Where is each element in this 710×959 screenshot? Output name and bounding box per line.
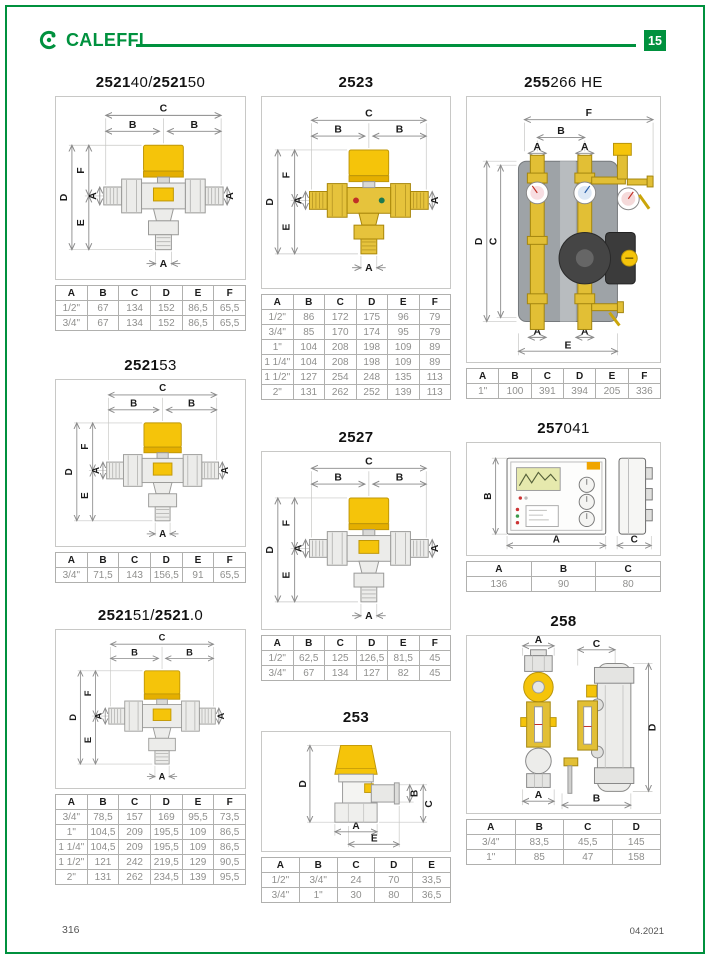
table-cell: 172 — [325, 310, 357, 325]
table-2527: ABCDEF1/2"62,5125126,581,5453/4"67134127… — [261, 635, 451, 681]
table-header-cell: F — [628, 369, 660, 384]
table-header-cell: C — [119, 795, 151, 810]
table-cell: 198 — [356, 355, 388, 370]
table-row: 1"100391394205336 — [467, 384, 661, 399]
table-cell: 152 — [150, 301, 182, 316]
table-cell: 174 — [356, 325, 388, 340]
table-header-cell: F — [214, 553, 246, 568]
dim-label-b: B — [557, 126, 565, 137]
table-header-cell: F — [214, 795, 246, 810]
table-cell: 89 — [419, 355, 451, 370]
table-header-cell: A — [56, 286, 88, 301]
table-cell: 1/2" — [262, 651, 294, 666]
diagram-258: A A C D B — [466, 635, 661, 814]
title-segment: 2521 — [124, 357, 159, 374]
dim-label-c: C — [593, 639, 601, 650]
page-number: 316 — [62, 924, 80, 936]
table-cell: 95 — [388, 325, 420, 340]
dim-label-b: B — [483, 493, 494, 500]
table-cell: 156,5 — [150, 568, 182, 583]
table-cell: 91 — [182, 568, 214, 583]
table-row: 1369080 — [467, 577, 661, 592]
table-header-row: ABCDEF — [262, 295, 451, 310]
table-cell: 391 — [531, 384, 563, 399]
title-segment: 2523 — [339, 74, 374, 91]
table-row: 1/2"3/4"247033,5 — [262, 873, 451, 888]
dim-label-a: A — [91, 467, 102, 474]
section-title-253: 253 — [261, 709, 451, 726]
table-row: 1 1/4"10420819810989 — [262, 355, 451, 370]
table-row: 2"131262252139113 — [262, 385, 451, 400]
table-cell: 36,5 — [413, 888, 451, 903]
dim-label-b: B — [130, 399, 137, 410]
table-cell: 262 — [325, 385, 357, 400]
table-cell: 129 — [182, 855, 214, 870]
table-cell: 104 — [293, 340, 325, 355]
table-row: 1"10420819810989 — [262, 340, 451, 355]
catalog-page: CALEFFI 15 252140/252150 — [0, 0, 710, 959]
table-cell: 82 — [388, 666, 420, 681]
title-segment: 041 — [564, 420, 590, 437]
table-252140: ABCDEF1/2"6713415286,565,53/4"6713415286… — [55, 285, 246, 331]
dim-label-a: A — [225, 192, 236, 200]
table-cell: 125 — [325, 651, 357, 666]
dim-label-d: D — [64, 468, 75, 475]
controller-drawing: B A C — [467, 443, 660, 555]
table-header-cell: B — [293, 636, 325, 651]
dim-label-e: E — [371, 833, 378, 844]
title-segment: 40/ — [131, 74, 153, 91]
body-label — [153, 188, 173, 201]
dim-label-a: A — [216, 712, 226, 719]
table-header-cell: C — [325, 636, 357, 651]
table-cell: 262 — [119, 870, 151, 885]
section-253: 253 — [261, 709, 451, 903]
title-segment: 50 — [188, 74, 206, 91]
section-255266: 255266 HE — [466, 74, 661, 399]
dim-label-a: A — [430, 196, 441, 204]
dim-label-b: B — [593, 794, 600, 805]
table-row: 1 1/2"127254248135113 — [262, 370, 451, 385]
fill-valve-handle — [639, 195, 649, 209]
column-1: 252140/252150 — [55, 74, 246, 885]
diagram-2523: C B B D F E A A A — [261, 96, 451, 289]
table-cell: 131 — [293, 385, 325, 400]
table-header-cell: D — [563, 369, 595, 384]
dim-label-a: A — [365, 263, 373, 274]
table-cell: 219,5 — [150, 855, 182, 870]
title-segment: 257 — [537, 420, 563, 437]
dim-label-a: A — [160, 259, 168, 270]
dim-label-d: D — [68, 714, 78, 721]
table-cell: 86,5 — [182, 301, 214, 316]
table-row: 1 1/4"104,5209195,510986,5 — [56, 840, 246, 855]
header-rule — [136, 44, 636, 47]
table-cell: 136 — [467, 577, 532, 592]
dim-label-d: D — [298, 780, 309, 787]
control-knobs — [579, 477, 594, 526]
table-header-cell: C — [596, 562, 661, 577]
table-cell: 65,5 — [214, 316, 246, 331]
table-row: 2"131262234,513995,5 — [56, 870, 246, 885]
table-row: 1 1/2"121242219,512990,5 — [56, 855, 246, 870]
dim-label-b: B — [186, 647, 193, 657]
table-header-cell: E — [413, 858, 451, 873]
mixing-valve-brass-drawing: C B B D F E A A A — [262, 97, 450, 288]
caleffi-gear-icon — [38, 29, 60, 51]
table-header-cell: A — [262, 636, 294, 651]
table-cell: 62,5 — [293, 651, 325, 666]
title-segment: 253 — [343, 709, 369, 726]
table-cell: 1/2" — [56, 301, 88, 316]
table-cell: 208 — [325, 355, 357, 370]
dim-label-a: A — [88, 192, 99, 200]
table-cell: 175 — [356, 310, 388, 325]
table-cell: 85 — [293, 325, 325, 340]
brand-tag — [587, 462, 600, 470]
table-header-row: ABCDEF — [467, 369, 661, 384]
table-header-cell: D — [150, 795, 182, 810]
table-header-row: ABCDE — [262, 858, 451, 873]
revision-date: 04.2021 — [630, 926, 664, 937]
table-row: 1/2"62,5125126,581,545 — [262, 651, 451, 666]
knob-stem — [157, 177, 169, 183]
table-header-row: ABCDEF — [56, 286, 246, 301]
table-header-cell: C — [119, 553, 151, 568]
outlet-pipe — [371, 785, 394, 802]
section-252151: 252151/2521.0 — [55, 607, 246, 885]
table-header-cell: E — [182, 553, 214, 568]
diagram-252140: C B B D F E A A A — [55, 96, 246, 280]
dim-label-f: F — [282, 172, 293, 178]
table-cell: 73,5 — [214, 810, 246, 825]
table-header-row: ABCD — [467, 820, 661, 835]
table-cell: 90,5 — [214, 855, 246, 870]
valve-cap — [335, 745, 377, 774]
table-cell: 104 — [293, 355, 325, 370]
title-segment: 266 HE — [550, 74, 602, 91]
table-252151: ABCDEF3/4"78,515716995,573,51"104,520919… — [55, 794, 246, 885]
table-header-cell: B — [87, 795, 119, 810]
table-cell: 90 — [531, 577, 596, 592]
table-cell: 45 — [419, 666, 451, 681]
table-header-cell: E — [388, 295, 420, 310]
table-cell: 127 — [293, 370, 325, 385]
table-cell: 135 — [388, 370, 420, 385]
table-row: 3/4"78,515716995,573,5 — [56, 810, 246, 825]
table-cell: 195,5 — [150, 840, 182, 855]
hot-port-dot — [353, 197, 359, 203]
table-cell: 198 — [356, 340, 388, 355]
table-cell: 80 — [375, 888, 413, 903]
title-segment: 258 — [550, 613, 576, 630]
dim-label-c: C — [159, 383, 166, 394]
table-cell: 336 — [628, 384, 660, 399]
table-cell: 209 — [119, 840, 151, 855]
table-cell: 394 — [563, 384, 595, 399]
flow-meter-front-view — [521, 650, 556, 788]
table-header-cell: A — [467, 369, 499, 384]
brand-text: CALEFFI — [66, 30, 144, 51]
table-cell: 104,5 — [87, 825, 119, 840]
section-title-2523: 2523 — [261, 74, 451, 91]
column-2: 2523 — [261, 74, 451, 903]
dim-label-a: A — [159, 529, 166, 540]
table-cell: 89 — [419, 340, 451, 355]
knob-band — [349, 524, 389, 530]
section-258: 258 — [466, 613, 661, 865]
dim-label-b: B — [409, 790, 420, 797]
table-cell: 3/4" — [467, 835, 516, 850]
table-cell: 96 — [388, 310, 420, 325]
section-title-255266: 255266 HE — [466, 74, 661, 91]
dim-label-c: C — [159, 633, 166, 643]
dim-label-f: F — [80, 444, 91, 450]
table-header-row: ABC — [467, 562, 661, 577]
return-line-pipe — [527, 155, 547, 329]
flow-meter-drawing: A A C D B — [467, 636, 660, 813]
title-segment: 2521 — [153, 74, 188, 91]
body-label — [359, 541, 379, 554]
table-255266: ABCDEF1"100391394205336 — [466, 368, 661, 399]
hex-nut — [335, 803, 377, 822]
dim-label-b: B — [188, 399, 195, 410]
dim-label-b: B — [396, 125, 404, 136]
table-header-cell: B — [531, 562, 596, 577]
table-cell: 3/4" — [56, 810, 88, 825]
table-header-cell: D — [150, 286, 182, 301]
table-cell: 1/2" — [262, 873, 300, 888]
knob-stem — [157, 453, 168, 459]
table-cell: 1 1/4" — [262, 355, 294, 370]
table-cell: 47 — [564, 850, 613, 865]
section-title-252153: 252153 — [55, 357, 246, 374]
column-3: 255266 HE — [466, 74, 661, 865]
knob-stem — [363, 530, 375, 536]
table-cell: 67 — [293, 666, 325, 681]
diagram-252153: C B B D F E A A A — [55, 379, 246, 547]
table-header-cell: B — [87, 553, 119, 568]
dim-label-f: F — [76, 167, 87, 173]
diagram-253: D B C A E — [261, 731, 451, 852]
table-header-cell: B — [299, 858, 337, 873]
dim-label-b: B — [334, 125, 342, 136]
dim-label-b: B — [131, 647, 138, 657]
valve-knob — [144, 671, 180, 694]
table-row: 1"104,5209195,510986,5 — [56, 825, 246, 840]
title-segment: 53 — [159, 357, 177, 374]
table-header-cell: B — [499, 369, 531, 384]
dim-label-a: A — [294, 544, 305, 552]
table-header-cell: A — [467, 562, 532, 577]
table-cell: 109 — [388, 340, 420, 355]
dim-label-f: F — [282, 520, 293, 526]
table-cell: 109 — [388, 355, 420, 370]
table-cell: 65,5 — [214, 301, 246, 316]
table-cell: 78,5 — [87, 810, 119, 825]
table-row: 3/4"83,545,5145 — [467, 835, 661, 850]
table-cell: 139 — [388, 385, 420, 400]
pump-group-drawing: F B A A D C A A E — [467, 97, 660, 362]
knob-band — [144, 171, 184, 177]
table-cell: 1" — [467, 850, 516, 865]
table-cell: 169 — [150, 810, 182, 825]
table-row: 3/4"6713415286,565,5 — [56, 316, 246, 331]
section-title-257041: 257041 — [466, 420, 661, 437]
table-cell: 242 — [119, 855, 151, 870]
dim-label-b: B — [396, 473, 404, 484]
mixing-valve-drawing: C B B D F E A A A — [262, 452, 450, 629]
table-cell: 131 — [87, 870, 119, 885]
table-header-cell: D — [356, 636, 388, 651]
table-cell: 85 — [515, 850, 564, 865]
table-header-cell: F — [419, 295, 451, 310]
table-row: 3/4"671341278245 — [262, 666, 451, 681]
table-cell: 121 — [87, 855, 119, 870]
knob-stem — [157, 699, 168, 704]
mixing-valve-drawing: C B B D F E A A A — [56, 630, 245, 788]
table-header-cell: B — [87, 286, 119, 301]
title-segment: .0 — [190, 607, 203, 624]
table-header-cell: D — [612, 820, 661, 835]
mixing-valve-drawing: C B B D F E A A A — [56, 97, 245, 279]
table-row: 3/4"71,5143156,59165,5 — [56, 568, 246, 583]
table-header-row: ABCDEF — [56, 795, 246, 810]
cold-port-dot — [379, 197, 385, 203]
table-header-cell: C — [119, 286, 151, 301]
terminal-label-box — [526, 506, 558, 527]
table-header-cell: C — [337, 858, 375, 873]
table-cell: 1 1/4" — [56, 840, 88, 855]
valve-knob — [349, 150, 389, 176]
dim-label-b: B — [129, 120, 137, 131]
table-cell: 71,5 — [87, 568, 119, 583]
table-header-cell: D — [150, 553, 182, 568]
table-cell: 109 — [182, 825, 214, 840]
table-cell: 109 — [182, 840, 214, 855]
table-header-cell: F — [419, 636, 451, 651]
section-2523: 2523 — [261, 74, 451, 400]
table-cell: 45,5 — [564, 835, 613, 850]
table-cell: 67 — [87, 301, 119, 316]
table-cell: 1" — [467, 384, 499, 399]
table-row: 3/4"1"308036,5 — [262, 888, 451, 903]
table-cell: 2" — [56, 870, 88, 885]
table-cell: 1" — [299, 888, 337, 903]
dim-label-c: C — [365, 108, 373, 119]
table-header-row: ABCDEF — [262, 636, 451, 651]
table-cell: 134 — [119, 301, 151, 316]
title-segment: 51/ — [133, 607, 155, 624]
table-row: 1/2"6713415286,565,5 — [56, 301, 246, 316]
table-header-cell: E — [182, 286, 214, 301]
controller-side-view — [619, 458, 646, 534]
dim-label-b: B — [190, 120, 198, 131]
diagram-255266: F B A A D C A A E — [466, 96, 661, 363]
table-header-cell: B — [515, 820, 564, 835]
table-cell: 3/4" — [56, 316, 88, 331]
table-253: ABCDE1/2"3/4"247033,53/4"1"308036,5 — [261, 857, 451, 903]
diagram-257041: B A C — [466, 442, 661, 556]
dim-label-d: D — [474, 237, 485, 245]
outlet-face — [394, 783, 399, 804]
knob-band — [144, 694, 180, 699]
table-cell: 86,5 — [214, 825, 246, 840]
table-cell: 1 1/2" — [56, 855, 88, 870]
mixing-valve-drawing: C B B D F E A A A — [56, 380, 245, 546]
caleffi-logo: CALEFFI — [38, 29, 144, 51]
table-cell: 86,5 — [214, 840, 246, 855]
diagram-2527: C B B D F E A A A — [261, 451, 451, 630]
table-cell: 79 — [419, 325, 451, 340]
table-cell: 70 — [375, 873, 413, 888]
dim-label-a: A — [430, 544, 441, 552]
dim-label-d: D — [265, 546, 276, 554]
table-cell: 248 — [356, 370, 388, 385]
table-cell: 79 — [419, 310, 451, 325]
table-cell: 139 — [182, 870, 214, 885]
body-label — [153, 463, 172, 475]
dim-label-c: C — [160, 103, 168, 114]
table-cell: 86,5 — [182, 316, 214, 331]
dim-label-a: A — [365, 611, 373, 622]
dim-label-f: F — [83, 690, 93, 696]
table-cell: 145 — [612, 835, 661, 850]
section-title-252151: 252151/2521.0 — [55, 607, 246, 624]
red-temperature-gauge — [526, 182, 548, 204]
table-header-cell: F — [214, 286, 246, 301]
table-cell: 113 — [419, 370, 451, 385]
knob-stem — [363, 182, 375, 188]
dim-label-a: A — [534, 142, 542, 153]
table-cell: 81,5 — [388, 651, 420, 666]
table-cell: 45 — [419, 651, 451, 666]
manifold-side-view — [564, 664, 634, 794]
dim-label-c: C — [424, 800, 435, 807]
dim-label-d: D — [647, 723, 658, 731]
dim-label-e: E — [83, 737, 93, 743]
section-2527: 2527 — [261, 429, 451, 681]
table-cell: 209 — [119, 825, 151, 840]
table-cell: 67 — [87, 316, 119, 331]
table-257041: ABC1369080 — [466, 561, 661, 592]
table-258: ABCD3/4"83,545,51451"8547158 — [466, 819, 661, 865]
table-cell: 143 — [119, 568, 151, 583]
table-cell: 152 — [150, 316, 182, 331]
table-header-cell: A — [467, 820, 516, 835]
table-header-cell: C — [531, 369, 563, 384]
title-segment: 2521 — [155, 607, 190, 624]
dim-label-a: A — [535, 790, 543, 801]
table-cell: 127 — [356, 666, 388, 681]
table-2523: ABCDEF1/2"8617217596793/4"8517017495791"… — [261, 294, 451, 400]
table-cell: 95,5 — [214, 870, 246, 885]
table-cell: 24 — [337, 873, 375, 888]
table-row: 1/2"861721759679 — [262, 310, 451, 325]
dim-label-d: D — [265, 198, 276, 206]
dim-label-a: A — [553, 535, 560, 546]
table-cell: 1/2" — [262, 310, 294, 325]
chapter-badge: 15 — [644, 30, 666, 51]
valve-knob — [144, 145, 184, 171]
table-cell: 170 — [325, 325, 357, 340]
knob-band — [349, 176, 389, 182]
dim-label-e: E — [80, 492, 91, 499]
section-title-252140: 252140/252150 — [55, 74, 246, 91]
table-cell: 30 — [337, 888, 375, 903]
table-header-cell: E — [182, 795, 214, 810]
section-257041: 257041 B A C — [466, 420, 661, 592]
